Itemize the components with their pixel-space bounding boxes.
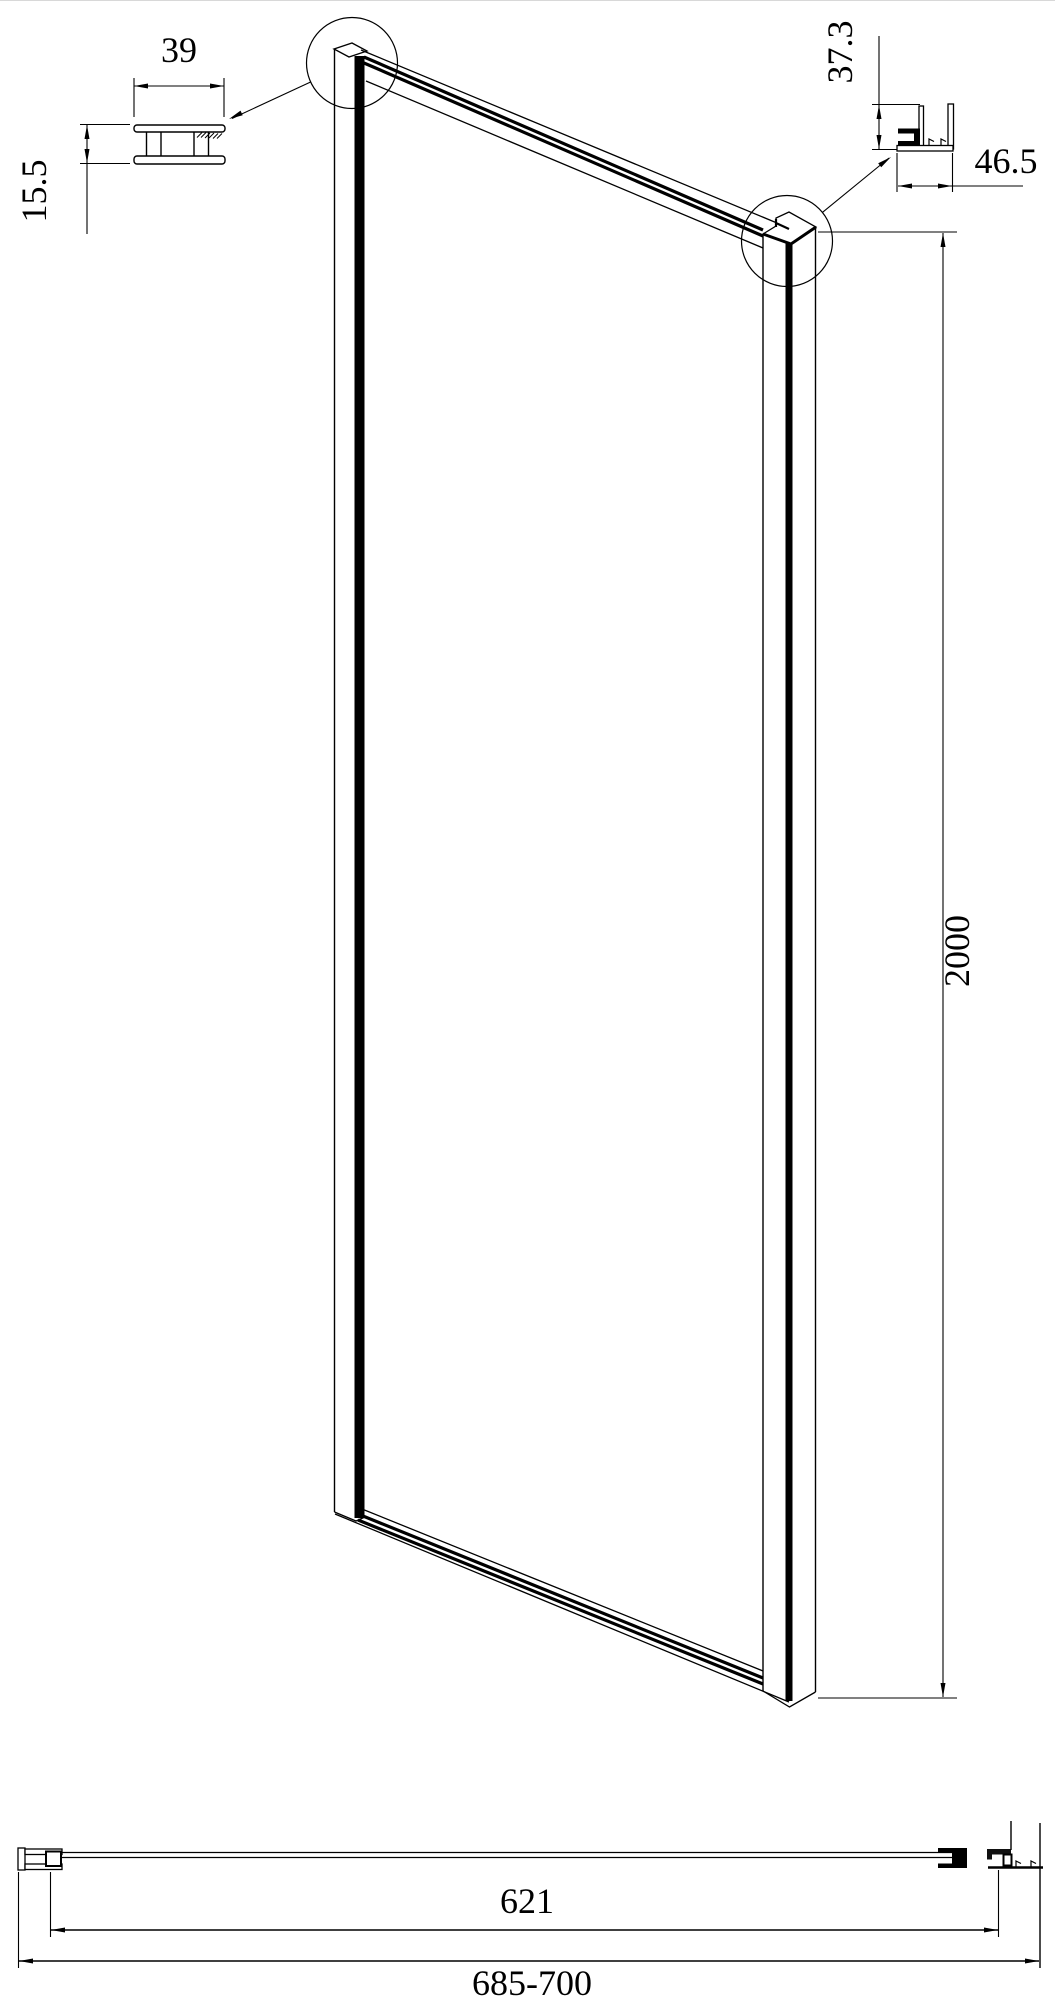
wall-profile-shape — [897, 104, 954, 151]
arrowhead — [878, 157, 891, 167]
arrowhead — [898, 184, 912, 189]
arrowhead — [941, 233, 946, 247]
arrowhead — [134, 84, 148, 89]
arrowhead — [1025, 1959, 1039, 1964]
leader-line — [822, 158, 889, 212]
arrowhead — [229, 111, 243, 119]
detail-callout-top-right — [742, 157, 892, 287]
arrowhead — [938, 184, 952, 189]
glass-channel-profile-shape — [134, 125, 225, 164]
clip-hooks — [1016, 1861, 1036, 1867]
arrowhead — [85, 125, 90, 139]
callout-circle — [307, 18, 398, 109]
arrowhead — [877, 105, 882, 119]
brush-seal-hatch — [197, 133, 222, 139]
bottom-rail — [335, 1507, 789, 1702]
right-post — [763, 212, 816, 1707]
glass-pane-plan — [62, 1853, 952, 1858]
panel-isometric-view — [334, 43, 816, 1707]
arrowhead — [51, 1928, 65, 1933]
wall-lines — [1011, 1821, 1040, 1968]
arrowhead — [85, 149, 90, 163]
dim-label-profile-height: 15.5 — [14, 160, 54, 223]
dim-label-wall-profile-width: 46.5 — [975, 141, 1038, 181]
arrowhead — [19, 1959, 33, 1964]
arrowhead — [941, 1683, 946, 1697]
dim-label-wall-profile-height: 37.3 — [820, 21, 860, 84]
clip-hooks — [929, 139, 946, 145]
arrowhead — [210, 84, 224, 89]
plan-left-channel-profile — [18, 1848, 62, 1870]
plan-wall-profile — [987, 1849, 1043, 1868]
dim-label-glass-width: 621 — [500, 1881, 554, 1921]
corner-bracket-cap — [763, 212, 816, 244]
left-post — [334, 43, 367, 1521]
technical-drawing-canvas: 39 15.5 — [0, 0, 1055, 2001]
arrowhead — [877, 135, 882, 149]
dim-label-profile-width: 39 — [161, 30, 197, 70]
dim-label-panel-height: 2000 — [937, 915, 977, 987]
arrowhead — [984, 1928, 998, 1933]
dim-label-overall-width: 685-700 — [472, 1963, 592, 2001]
drawing-svg: 39 15.5 — [0, 1, 1055, 2001]
top-rail — [361, 50, 777, 248]
leader-line — [232, 82, 311, 119]
